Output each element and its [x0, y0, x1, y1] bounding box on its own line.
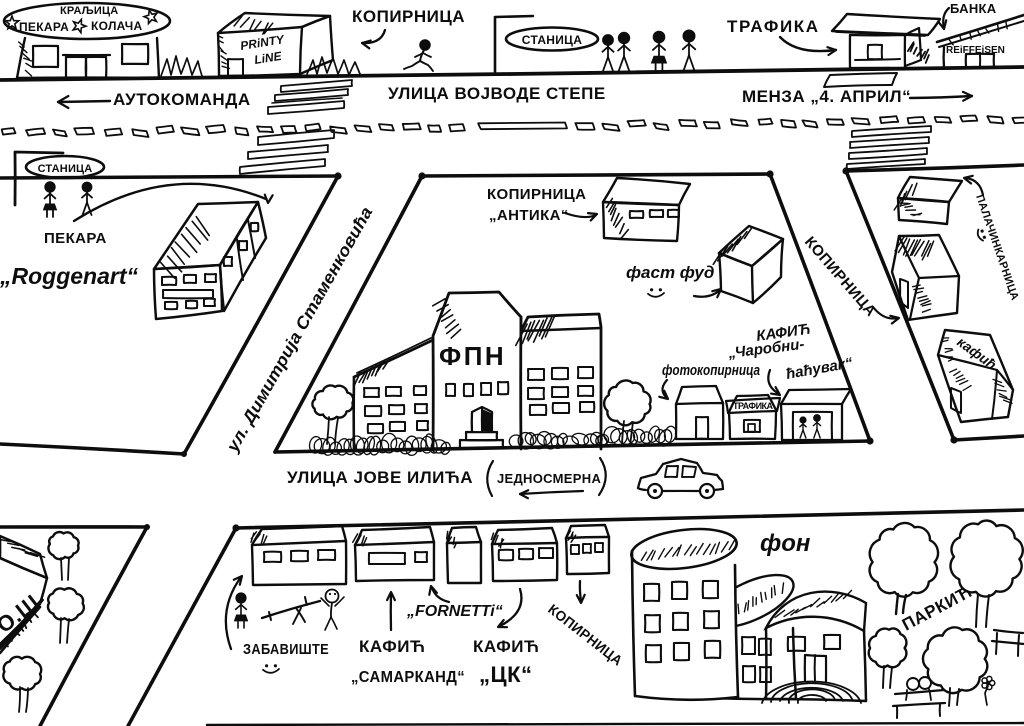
svg-text:ФПН: ФПН: [439, 341, 506, 371]
svg-text:„АНТИКА“: „АНТИКА“: [489, 207, 569, 224]
svg-text:ЈЕДНОСМЕРНА: ЈЕДНОСМЕРНА: [497, 471, 601, 486]
svg-text:КОПИРНИЦА: КОПИРНИЦА: [487, 186, 586, 203]
svg-text:АУТОКОМАНДА: АУТОКОМАНДА: [113, 90, 251, 109]
svg-text:УЛИЦА ВОЈВОДЕ СТЕПЕ: УЛИЦА ВОЈВОДЕ СТЕПЕ: [388, 84, 606, 103]
svg-text:„САМАРКАНД“: „САМАРКАНД“: [351, 669, 465, 686]
svg-text:ТРАФИКА: ТРАФИКА: [733, 401, 774, 411]
svg-text:КОПИРНИЦА: КОПИРНИЦА: [801, 233, 879, 320]
svg-text:БАНКА: БАНКА: [950, 1, 997, 16]
svg-text:КРАЉИЦА: КРАЉИЦА: [60, 5, 118, 17]
svg-text:СТАНИЦА: СТАНИЦА: [522, 33, 582, 47]
svg-text:КАФИЋ: КАФИЋ: [473, 637, 539, 656]
svg-text:КОЛАЧА: КОЛАЧА: [91, 19, 142, 33]
svg-text:ћаћувак“: ћаћувак“: [785, 354, 855, 383]
svg-text:ПЕКАРА: ПЕКАРА: [19, 20, 69, 34]
svg-text:„Roggenart“: „Roggenart“: [0, 263, 139, 289]
svg-text:КОПИРНИЦА: КОПИРНИЦА: [545, 601, 626, 669]
svg-text:фаст фуд: фаст фуд: [626, 263, 714, 282]
svg-text:фон: фон: [760, 530, 811, 557]
svg-text:ЗАБАВИШТЕ: ЗАБАВИШТЕ: [243, 641, 329, 658]
svg-text:КОПИРНИЦА: КОПИРНИЦА: [352, 7, 465, 26]
svg-text:ПАРКИЋ: ПАРКИЋ: [899, 582, 975, 635]
svg-text:КАФИЋ: КАФИЋ: [359, 637, 425, 656]
svg-text:СТАНИЦА: СТАНИЦА: [38, 163, 93, 175]
svg-text:ПАЛАЧИНКАРНИЦА: ПАЛАЧИНКАРНИЦА: [973, 193, 1020, 302]
svg-text:„ЦК“: „ЦК“: [479, 662, 533, 687]
svg-text:ПЕКАРА: ПЕКАРА: [44, 230, 107, 247]
svg-text:УЛИЦА ЈОВЕ ИЛИЋА: УЛИЦА ЈОВЕ ИЛИЋА: [287, 468, 473, 487]
svg-text:ТРАФИКА: ТРАФИКА: [727, 17, 820, 36]
svg-text:фотокопирница: фотокопирница: [662, 362, 760, 379]
svg-text:„Чаробни-: „Чаробни-: [726, 336, 805, 362]
svg-text:LiNE: LiNE: [253, 49, 283, 67]
svg-text:„FORNETTi“: „FORNETTi“: [406, 603, 503, 620]
svg-text:МЕНЗА „4. АПРИЛ“: МЕНЗА „4. АПРИЛ“: [742, 87, 911, 106]
